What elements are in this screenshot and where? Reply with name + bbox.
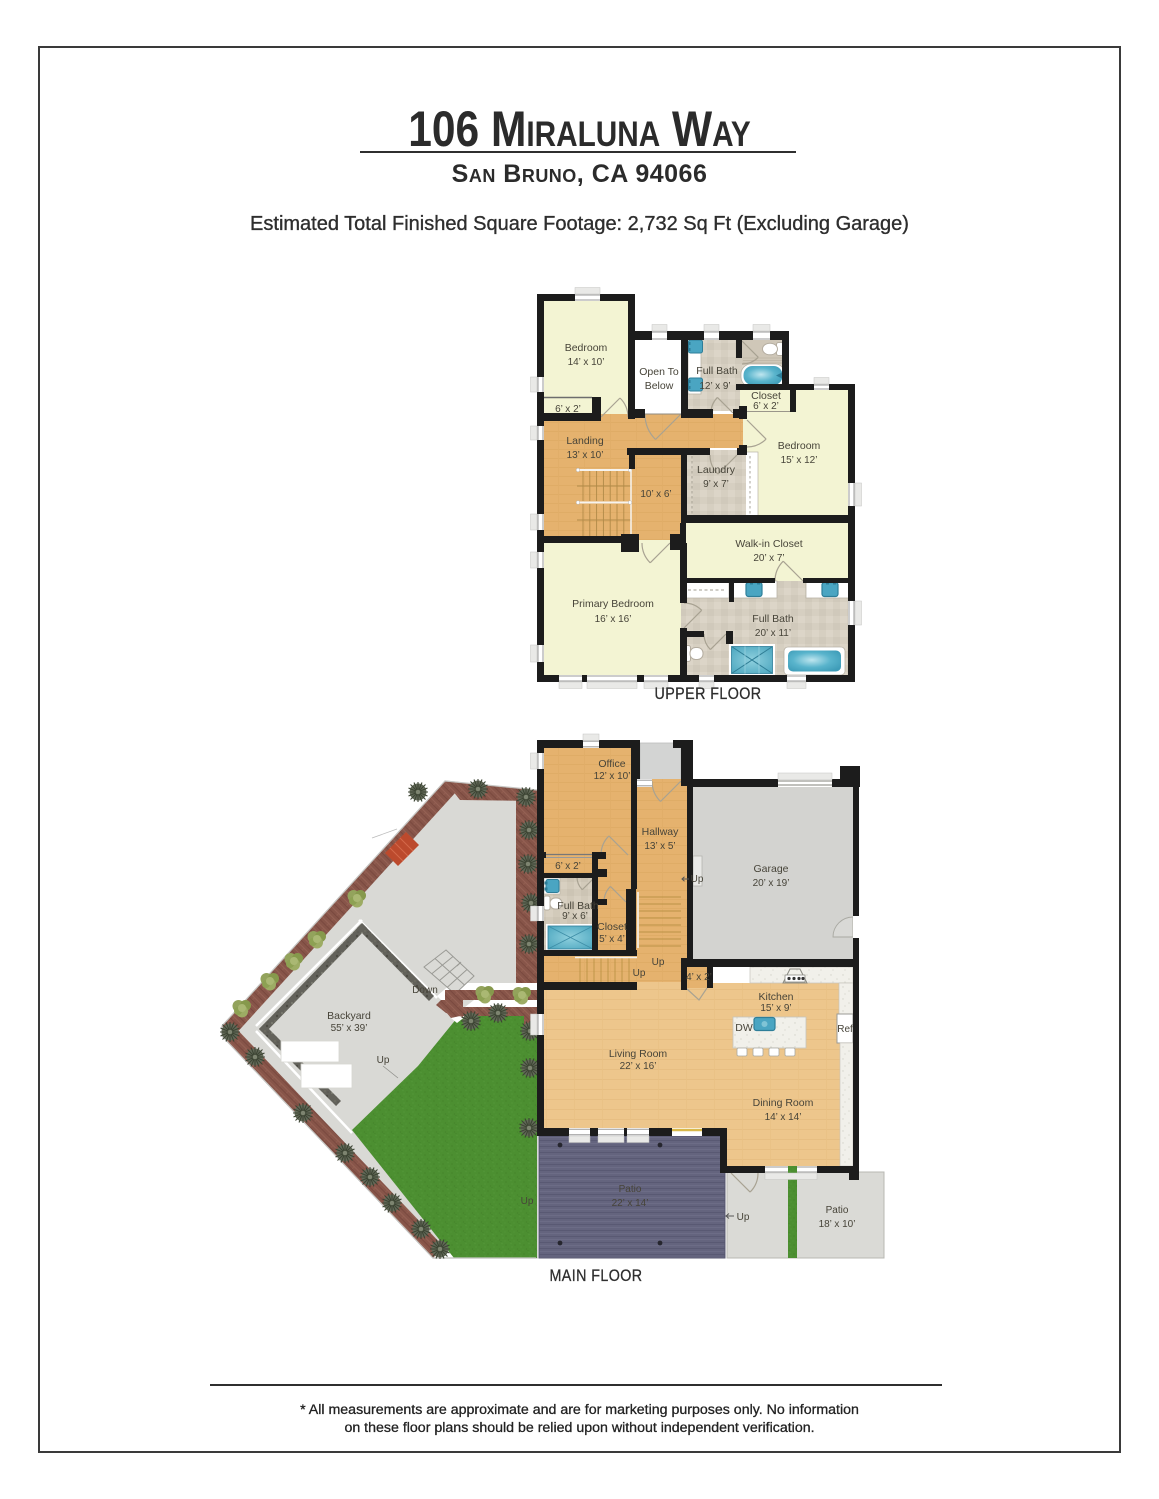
svg-text:Up: Up — [737, 1212, 750, 1223]
svg-text:Primary Bedroom: Primary Bedroom — [572, 598, 654, 610]
svg-text:4’ x 2’: 4’ x 2’ — [686, 972, 712, 983]
svg-text:20’ x 7’: 20’ x 7’ — [753, 553, 784, 564]
svg-text:Patio: Patio — [619, 1184, 642, 1195]
svg-text:Closet: Closet — [597, 921, 627, 933]
svg-text:16’ x 16’: 16’ x 16’ — [595, 614, 632, 625]
svg-text:Office: Office — [598, 758, 625, 770]
svg-text:13’ x 5’: 13’ x 5’ — [644, 841, 675, 852]
svg-text:Up: Up — [377, 1055, 390, 1066]
svg-text:Down: Down — [412, 985, 438, 996]
svg-text:Backyard: Backyard — [327, 1010, 371, 1022]
svg-text:10’ x 6’: 10’ x 6’ — [640, 489, 671, 500]
svg-text:Up: Up — [691, 874, 704, 885]
svg-text:Patio: Patio — [826, 1205, 849, 1216]
svg-text:Dining Room: Dining Room — [753, 1097, 814, 1109]
svg-text:18’ x 10’: 18’ x 10’ — [819, 1219, 856, 1230]
svg-text:Full Bath: Full Bath — [696, 365, 738, 377]
svg-text:Garage: Garage — [753, 863, 788, 875]
svg-text:20’ x 19’: 20’ x 19’ — [753, 878, 790, 889]
svg-text:Kitchen: Kitchen — [758, 991, 793, 1003]
svg-text:14’ x 14’: 14’ x 14’ — [765, 1112, 802, 1123]
svg-text:6’ x 2’: 6’ x 2’ — [555, 404, 581, 415]
svg-text:14’ x 10’: 14’ x 10’ — [568, 357, 605, 368]
svg-text:13’ x 10’: 13’ x 10’ — [567, 450, 604, 461]
svg-text:12’ x 9’: 12’ x 9’ — [699, 381, 730, 392]
svg-text:9’ x 7’: 9’ x 7’ — [703, 479, 729, 490]
svg-text:12’ x 10’: 12’ x 10’ — [594, 771, 631, 782]
svg-text:Open To: Open To — [639, 366, 679, 378]
svg-text:5’ x 4’: 5’ x 4’ — [599, 934, 625, 945]
svg-text:Landing: Landing — [566, 435, 604, 447]
svg-text:9’ x 6’: 9’ x 6’ — [562, 911, 588, 922]
svg-text:Walk-in Closet: Walk-in Closet — [735, 538, 802, 550]
svg-text:Up: Up — [633, 968, 646, 979]
svg-text:15’ x 12’: 15’ x 12’ — [781, 455, 818, 466]
svg-text:DW: DW — [735, 1022, 753, 1034]
svg-text:15’ x 9’: 15’ x 9’ — [760, 1003, 791, 1014]
svg-text:Laundry: Laundry — [697, 464, 736, 476]
svg-text:Bedroom: Bedroom — [565, 342, 608, 354]
svg-text:55’ x 39’: 55’ x 39’ — [331, 1023, 368, 1034]
svg-text:Hallway: Hallway — [642, 826, 680, 838]
svg-text:Up: Up — [652, 957, 665, 968]
svg-text:6’ x 2’: 6’ x 2’ — [555, 861, 581, 872]
svg-text:Bedroom: Bedroom — [778, 440, 821, 452]
svg-text:6’ x 2’: 6’ x 2’ — [753, 401, 779, 412]
svg-text:Ref: Ref — [837, 1024, 853, 1035]
svg-text:20’ x 11’: 20’ x 11’ — [755, 628, 791, 639]
svg-text:22’ x 16’: 22’ x 16’ — [620, 1061, 657, 1072]
svg-text:22’ x 14’: 22’ x 14’ — [612, 1198, 649, 1209]
svg-text:Below: Below — [645, 380, 674, 392]
svg-text:Up: Up — [521, 1196, 534, 1207]
svg-text:Full Bath: Full Bath — [752, 613, 794, 625]
svg-text:Living Room: Living Room — [609, 1048, 668, 1060]
